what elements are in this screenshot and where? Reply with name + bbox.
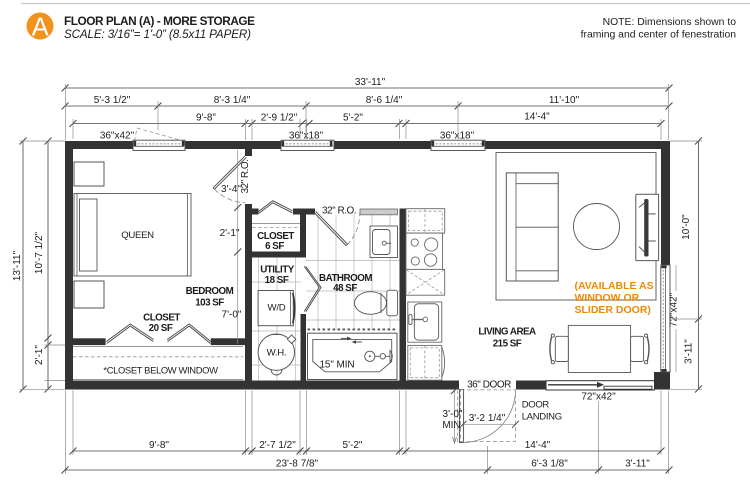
svg-text:2'-9 1/2": 2'-9 1/2" xyxy=(261,113,298,124)
svg-text:UTILITY: UTILITY xyxy=(260,265,294,276)
svg-text:5'-3 1/2": 5'-3 1/2" xyxy=(94,95,131,106)
svg-text:33'-11": 33'-11" xyxy=(355,77,386,88)
svg-text:23'-8 7/8": 23'-8 7/8" xyxy=(276,459,319,470)
svg-text:14'-4": 14'-4" xyxy=(525,440,551,451)
svg-text:*CLOSET BELOW WINDOW: *CLOSET BELOW WINDOW xyxy=(103,365,218,376)
svg-text:LIVING AREA: LIVING AREA xyxy=(478,327,536,338)
svg-text:3'-11": 3'-11" xyxy=(625,459,650,470)
svg-text:framing and center of fenestra: framing and center of fenestration xyxy=(581,30,737,41)
svg-text:QUEEN: QUEEN xyxy=(121,230,154,241)
svg-text:NOTE: Dimensions shown to: NOTE: Dimensions shown to xyxy=(603,17,737,28)
svg-text:2'-7 1/2": 2'-7 1/2" xyxy=(259,440,296,451)
svg-text:8'-6 1/4": 8'-6 1/4" xyxy=(366,95,403,106)
svg-text:20 SF: 20 SF xyxy=(149,323,173,334)
svg-text:5'-2": 5'-2" xyxy=(343,440,363,451)
svg-text:36"x42": 36"x42" xyxy=(100,130,135,141)
svg-text:32" R.O.: 32" R.O. xyxy=(322,206,356,217)
svg-text:2'-1": 2'-1" xyxy=(34,345,45,365)
svg-text:2'-1": 2'-1" xyxy=(220,228,240,239)
svg-text:CLOSET: CLOSET xyxy=(143,313,180,324)
svg-text:3'-2 1/4": 3'-2 1/4" xyxy=(469,413,506,424)
svg-text:A: A xyxy=(32,13,49,41)
svg-text:10'-0": 10'-0" xyxy=(681,214,692,240)
svg-text:6'-3 1/8": 6'-3 1/8" xyxy=(531,459,568,470)
svg-text:9'-8": 9'-8" xyxy=(149,440,169,451)
svg-text:3'-4": 3'-4" xyxy=(221,184,241,195)
svg-text:18 SF: 18 SF xyxy=(265,275,289,286)
svg-text:(AVAILABLE AS: (AVAILABLE AS xyxy=(575,280,654,292)
svg-text:13'-11": 13'-11" xyxy=(12,250,23,281)
svg-text:8'-3 1/4": 8'-3 1/4" xyxy=(214,95,251,106)
svg-text:11'-10": 11'-10" xyxy=(549,95,580,106)
svg-text:W/D: W/D xyxy=(268,303,286,314)
svg-text:103 SF: 103 SF xyxy=(195,298,224,309)
svg-text:DOOR: DOOR xyxy=(522,400,550,411)
svg-text:32" R.O.: 32" R.O. xyxy=(240,159,251,193)
svg-text:WINDOW OR: WINDOW OR xyxy=(575,292,640,304)
svg-text:FLOOR PLAN (A) - MORE STORAGE: FLOOR PLAN (A) - MORE STORAGE xyxy=(64,14,255,28)
svg-text:48 SF: 48 SF xyxy=(333,283,357,294)
svg-text:14'-4": 14'-4" xyxy=(524,112,550,123)
svg-text:SCALE: 3/16”= 1'-0” (8.5x11 PA: SCALE: 3/16”= 1'-0” (8.5x11 PAPER) xyxy=(64,28,251,41)
svg-text:6 SF: 6 SF xyxy=(265,241,284,252)
svg-text:W.H.: W.H. xyxy=(267,348,287,359)
svg-text:SLIDER DOOR): SLIDER DOOR) xyxy=(575,304,651,316)
svg-text:3'-11": 3'-11" xyxy=(684,339,695,364)
svg-text:72"x42": 72"x42" xyxy=(669,292,680,327)
svg-text:15" MIN: 15" MIN xyxy=(319,360,354,371)
svg-text:36" DOOR: 36" DOOR xyxy=(467,379,511,390)
svg-text:5'-2": 5'-2" xyxy=(343,113,363,124)
svg-text:36"x18": 36"x18" xyxy=(440,130,475,141)
svg-text:215 SF: 215 SF xyxy=(493,339,522,350)
svg-text:LANDING: LANDING xyxy=(522,412,562,423)
svg-text:72"x42": 72"x42" xyxy=(581,392,616,403)
svg-text:7'-0": 7'-0" xyxy=(222,310,242,321)
svg-text:10'-7 1/2": 10'-7 1/2" xyxy=(34,231,45,274)
svg-text:9'-8": 9'-8" xyxy=(196,113,216,124)
svg-text:MIN: MIN xyxy=(442,420,460,431)
svg-text:BEDROOM: BEDROOM xyxy=(186,286,234,297)
svg-text:3'-0": 3'-0" xyxy=(443,409,463,420)
